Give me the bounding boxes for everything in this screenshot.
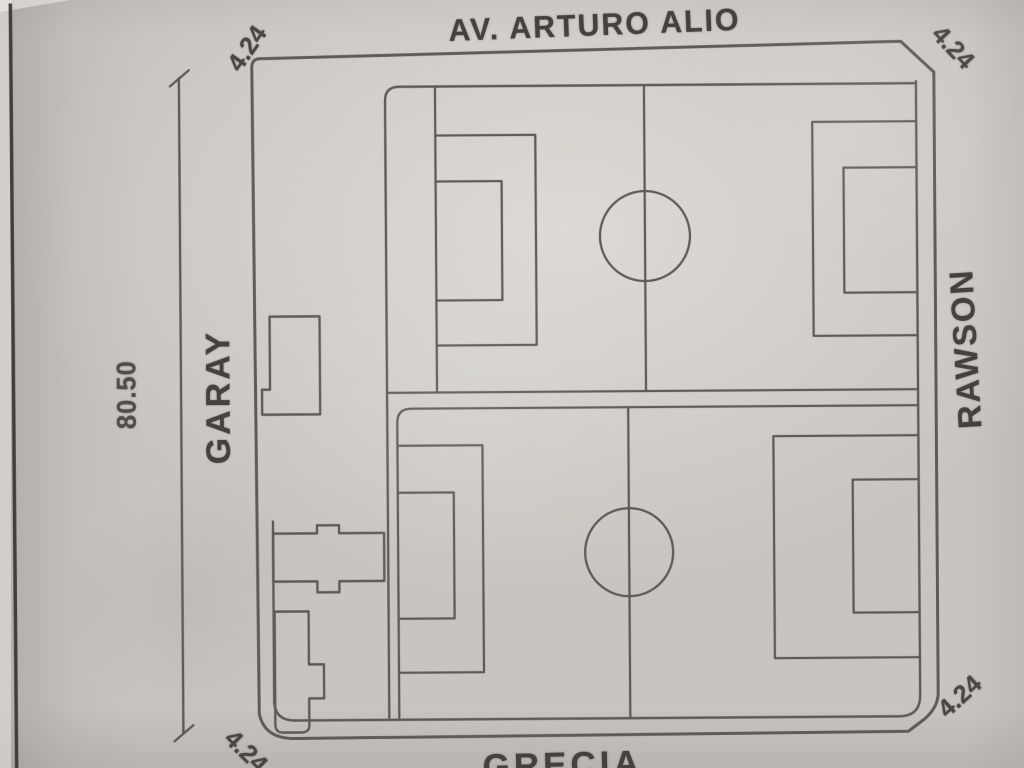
building-lower-left [275, 611, 325, 732]
page-edge-line [10, 0, 16, 768]
street-label-bottom: GRECIA [482, 744, 643, 768]
lower-right-penalty-box [773, 435, 920, 658]
upper-right-goal-box [843, 167, 917, 293]
fields-enclosure [385, 83, 920, 718]
soccer-field-upper [385, 83, 918, 393]
upper-right-penalty-box [812, 121, 917, 336]
lower-left-goal-box [398, 492, 455, 618]
dimension-line [170, 70, 194, 741]
dimension-left-label: 80.50 [111, 360, 142, 429]
lower-center-line [628, 407, 630, 718]
plan-linework [0, 0, 1024, 768]
upper-field-bottom-line [387, 389, 918, 393]
lower-field-outline [397, 405, 920, 718]
upper-left-goal-box [436, 181, 503, 300]
street-label-left: GARAY [199, 330, 239, 465]
lower-left-penalty-box [397, 445, 484, 673]
lower-right-goal-box [853, 479, 920, 612]
upper-center-line [644, 85, 646, 391]
upper-left-penalty-box [435, 135, 536, 346]
scanned-site-plan: AV. ARTURO ALIO GARAY 80.50 RAWSON GRECI… [0, 0, 1024, 768]
lot-boundary-inner [270, 81, 920, 720]
building-upper-left [262, 316, 321, 414]
building-middle-left [273, 525, 384, 593]
soccer-field-lower [397, 405, 920, 720]
